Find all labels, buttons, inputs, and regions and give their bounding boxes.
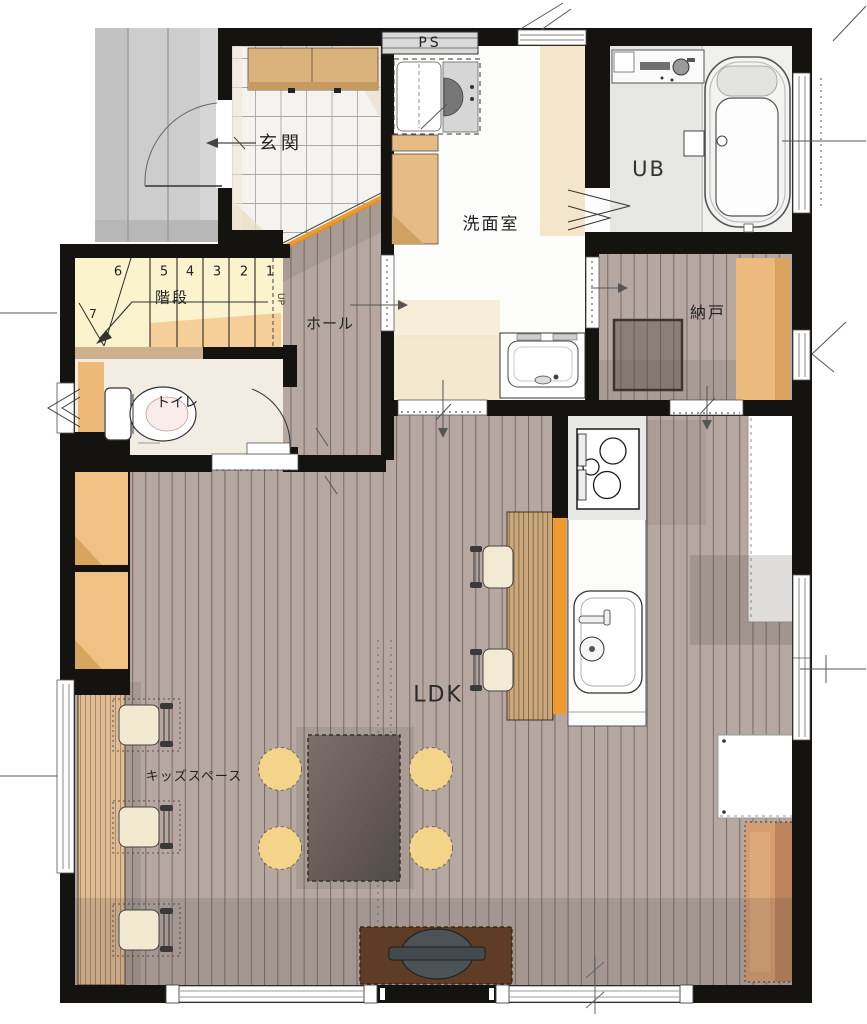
washing-machine bbox=[394, 59, 480, 134]
label-up: UP bbox=[275, 293, 285, 305]
bath-control-panel bbox=[684, 131, 704, 156]
stair-step-number: 2 bbox=[240, 265, 248, 280]
laundry-cabinet bbox=[392, 135, 438, 244]
label-washroom: 洗面室 bbox=[463, 210, 520, 235]
label-stairs: 階段 bbox=[155, 287, 189, 308]
kitchen-sink bbox=[574, 591, 642, 693]
stair-step-number: 6 bbox=[114, 265, 122, 280]
shoe-cabinet bbox=[248, 48, 378, 93]
staircase bbox=[75, 258, 283, 359]
stair-step-number: 4 bbox=[186, 265, 194, 280]
label-entrance: 玄関 bbox=[259, 129, 303, 155]
shower-counter bbox=[612, 50, 704, 83]
storage-box bbox=[614, 320, 682, 390]
label-unit-bath: UB bbox=[632, 157, 666, 181]
kitchen-stove bbox=[577, 429, 639, 509]
label-kids-space: キッズスペース bbox=[146, 766, 242, 785]
tv-board bbox=[360, 927, 512, 984]
vanity-sink bbox=[500, 333, 585, 398]
label-storage: 納戸 bbox=[690, 299, 726, 323]
floor-plan-drawing bbox=[0, 0, 867, 1024]
label-ldk: LDK bbox=[413, 683, 463, 708]
stair-step-number: 3 bbox=[213, 265, 221, 280]
stair-step-number: 5 bbox=[160, 265, 168, 280]
bar-counter bbox=[507, 512, 566, 720]
entry-porch bbox=[95, 28, 230, 242]
stair-step-number: 7 bbox=[89, 307, 97, 321]
dining-table bbox=[308, 735, 400, 881]
bathtub bbox=[705, 57, 790, 232]
label-pipe-space: PS bbox=[418, 35, 441, 51]
label-hall: ホール bbox=[306, 313, 354, 334]
stair-step-number: 1 bbox=[266, 265, 274, 280]
floor-plan: 玄関 PS 洗面室 UB 階段 ホール 納戸 トイレ LDK キッズスペース U… bbox=[0, 0, 867, 1024]
label-toilet: トイレ bbox=[156, 392, 198, 412]
storage-closet bbox=[736, 258, 790, 402]
